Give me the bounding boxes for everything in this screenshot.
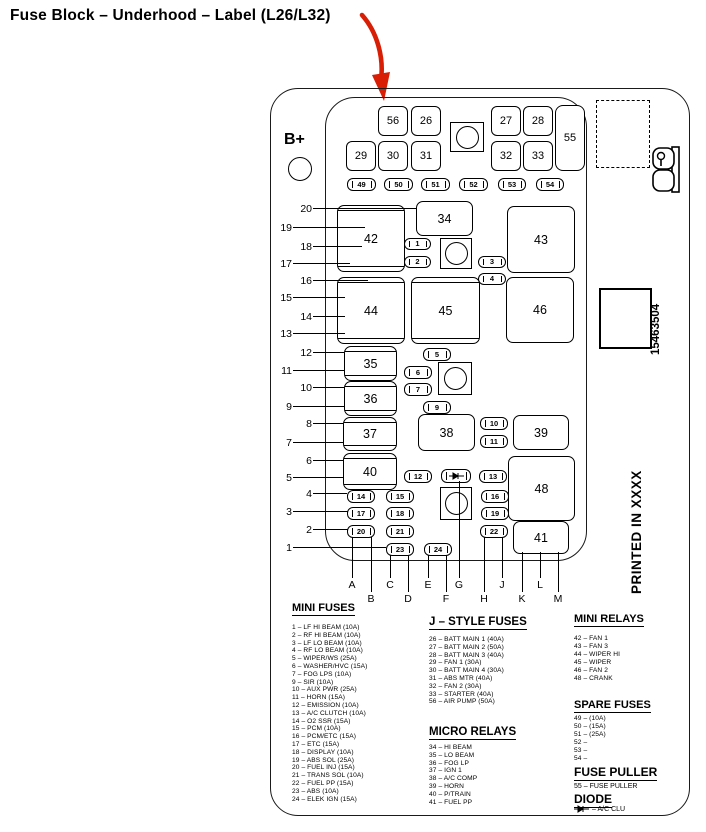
mounting-box — [599, 288, 652, 349]
leader-line — [313, 493, 347, 494]
column-line — [352, 537, 353, 578]
relay-36: 36 — [344, 381, 397, 416]
column-line — [484, 537, 485, 592]
mini-fuse-5: 5 — [423, 348, 451, 361]
diode-label: – A/C CLU — [592, 806, 625, 813]
relay-34: 34 — [416, 201, 473, 236]
pin-number: 13 — [272, 328, 292, 340]
spare-fuse-52: 52 — [459, 178, 488, 191]
legend-item: 44 – WIPER HI — [574, 651, 620, 659]
column-letter: B — [364, 593, 378, 605]
micro-relays-list: 34 – HI BEAM35 – LO BEAM36 – FOG LP37 – … — [429, 744, 477, 806]
legend-item: 51 – (25A) — [574, 731, 606, 739]
pin-number: 2 — [292, 524, 312, 536]
legend-item: 50 – (15A) — [574, 723, 606, 731]
legend-item: 9 – SIR (10A) — [292, 679, 367, 687]
legend-item: 48 – CRANK — [574, 675, 620, 683]
micro-relays-heading: MICRO RELAYS — [429, 726, 516, 740]
leader-line — [313, 208, 416, 209]
legend-item: 31 – ABS MTR (40A) — [429, 675, 504, 683]
legend-item: 52 – — [574, 739, 606, 747]
legend-item: 45 – WIPER — [574, 659, 620, 667]
pin-number: 1 — [272, 542, 292, 554]
fuse-puller-slot-55: 55 — [555, 105, 585, 171]
leader-line — [313, 387, 344, 388]
column-line — [459, 481, 460, 578]
column-letter: C — [383, 579, 397, 591]
legend-item: 19 – ABS SOL (25A) — [292, 757, 367, 765]
column-line — [428, 555, 429, 578]
diode-symbol-icon — [449, 472, 464, 480]
mini-fuse-14: 14 — [347, 490, 375, 503]
column-letter: G — [452, 579, 466, 591]
legend-item: 26 – BATT MAIN 1 (40A) — [429, 636, 504, 644]
legend-item: 30 – BATT MAIN 4 (30A) — [429, 667, 504, 675]
column-letter: F — [439, 593, 453, 605]
fuse-block-diagram: Fuse Block – Underhood – Label (L26/L32)… — [0, 0, 706, 832]
legend-item: 22 – FUEL PP (15A) — [292, 780, 367, 788]
pin-number: 16 — [292, 275, 312, 287]
bolt-circle-icon — [445, 492, 468, 515]
mini-fuse-16: 16 — [481, 490, 509, 503]
legend-item: 17 – ETC (15A) — [292, 741, 367, 749]
bolt-circle-icon — [456, 126, 479, 149]
legend-item: 13 – A/C CLUTCH (10A) — [292, 710, 367, 718]
legend-item: 11 – HORN (15A) — [292, 694, 367, 702]
leader-line — [313, 529, 348, 530]
fuse-27: 27 — [491, 106, 521, 136]
relay-37: 37 — [343, 417, 397, 451]
leader-line — [293, 333, 345, 334]
part-number: 15463504 — [650, 281, 662, 355]
diode-symbol-icon — [574, 805, 589, 813]
mini-fuse-4: 4 — [478, 273, 506, 285]
relay-41: 41 — [513, 521, 569, 554]
spare-fuse-51: 51 — [421, 178, 450, 191]
mini-relays-list: 42 – FAN 143 – FAN 344 – WIPER HI45 – WI… — [574, 635, 620, 683]
fuse-puller-icon — [646, 146, 682, 194]
column-line — [390, 555, 391, 578]
bolt-circle-icon — [444, 367, 467, 390]
pin-number: 4 — [292, 488, 312, 500]
diode-slot — [441, 469, 471, 483]
pin-number: 19 — [272, 222, 292, 234]
column-letter: H — [477, 593, 491, 605]
column-letter: D — [401, 593, 415, 605]
legend-item: 54 – — [574, 755, 606, 763]
legend-item: 28 – BATT MAIN 3 (40A) — [429, 652, 504, 660]
pin-number: 12 — [292, 347, 312, 359]
legend-item: 37 – IGN 1 — [429, 767, 477, 775]
legend-item: 16 – PCM/ETC (15A) — [292, 733, 367, 741]
column-line — [502, 537, 503, 578]
legend-item: 27 – BATT MAIN 2 (50A) — [429, 644, 504, 652]
legend-item: 39 – HORN — [429, 783, 477, 791]
legend-item: 38 – A/C COMP — [429, 775, 477, 783]
legend-item: 15 – PCM (10A) — [292, 725, 367, 733]
leader-line — [293, 406, 345, 407]
legend-item: 23 – ABS (10A) — [292, 788, 367, 796]
relay-45: 45 — [411, 277, 480, 344]
mini-fuse-19: 19 — [481, 507, 509, 520]
pin-number: 9 — [272, 401, 292, 413]
mini-fuse-1: 1 — [404, 238, 431, 250]
leader-line — [313, 280, 368, 281]
mini-fuse-13: 13 — [479, 470, 507, 483]
b-plus-stud-icon — [288, 157, 312, 181]
mini-fuse-11: 11 — [480, 435, 508, 448]
legend-item: 36 – FOG LP — [429, 760, 477, 768]
spare-fuse-53: 53 — [498, 178, 526, 191]
legend-item: 14 – O2 SSR (15A) — [292, 718, 367, 726]
spare-fuse-50: 50 — [384, 178, 413, 191]
fuse-56: 56 — [378, 106, 408, 136]
legend-item: 7 – FOG LPS (10A) — [292, 671, 367, 679]
pin-number: 15 — [272, 292, 292, 304]
column-letter: L — [533, 579, 547, 591]
fuse-33: 33 — [523, 141, 553, 171]
relay-40: 40 — [343, 453, 397, 490]
leader-line — [293, 511, 348, 512]
legend-item: 5 – WIPER/WS (25A) — [292, 655, 367, 663]
mini-fuse-3: 3 — [478, 256, 506, 268]
column-line — [558, 552, 559, 592]
pin-number: 20 — [292, 203, 312, 215]
legend-item: 20 – FUEL INJ (15A) — [292, 764, 367, 772]
legend-item: 49 – (10A) — [574, 715, 606, 723]
spare-fuses-heading: SPARE FUSES — [574, 699, 651, 713]
leader-line — [293, 442, 343, 443]
bolt-hole-icon — [440, 238, 472, 269]
legend-item: 32 – FAN 2 (30A) — [429, 683, 504, 691]
legend-item: 46 – FAN 2 — [574, 667, 620, 675]
leader-line — [293, 227, 365, 228]
legend-item: 56 – AIR PUMP (50A) — [429, 698, 504, 706]
legend-item: 3 – LF LO BEAM (10A) — [292, 640, 367, 648]
column-letter: E — [421, 579, 435, 591]
fuse-32: 32 — [491, 141, 521, 171]
legend-item: 1 – LF HI BEAM (10A) — [292, 624, 367, 632]
pin-number: 8 — [292, 418, 312, 430]
spare-fuse-49: 49 — [347, 178, 376, 191]
column-line — [408, 555, 409, 592]
legend-item: 33 – STARTER (40A) — [429, 691, 504, 699]
b-plus-label: B+ — [284, 131, 305, 149]
legend-item: 21 – TRANS SOL (10A) — [292, 772, 367, 780]
fuse-29: 29 — [346, 141, 376, 171]
pin-number: 5 — [272, 472, 292, 484]
leader-line — [313, 423, 343, 424]
mini-fuses-list: 1 – LF HI BEAM (10A)2 – RF HI BEAM (10A)… — [292, 624, 367, 803]
fuse-puller-heading: FUSE PULLER — [574, 765, 657, 781]
mini-fuse-10: 10 — [480, 417, 508, 430]
relay-43: 43 — [507, 206, 575, 273]
column-letter: K — [515, 593, 529, 605]
legend-item: 24 – ELEK IGN (15A) — [292, 796, 367, 804]
mini-fuse-2: 2 — [404, 256, 431, 268]
column-line — [446, 555, 447, 592]
j-style-fuses-list: 26 – BATT MAIN 1 (40A)27 – BATT MAIN 2 (… — [429, 636, 504, 706]
fuse-31: 31 — [411, 141, 441, 171]
leader-line — [313, 460, 343, 461]
leader-line — [293, 263, 350, 264]
legend-item: 18 – DISPLAY (10A) — [292, 749, 367, 757]
pin-number: 6 — [292, 455, 312, 467]
column-letter: J — [495, 579, 509, 591]
legend-item: 2 – RF HI BEAM (10A) — [292, 632, 367, 640]
mini-fuse-21: 21 — [386, 525, 414, 538]
fuse-26: 26 — [411, 106, 441, 136]
legend-item: 53 – — [574, 747, 606, 755]
diode-legend-row: – A/C CLU — [574, 805, 625, 813]
dashed-placeholder-box — [596, 100, 650, 168]
fuse-puller-item: 55 – FUSE PULLER — [574, 783, 637, 790]
mini-relays-heading: MINI RELAYS — [574, 613, 644, 627]
fuse-28: 28 — [523, 106, 553, 136]
relay-35: 35 — [344, 346, 397, 381]
legend-item: 34 – HI BEAM — [429, 744, 477, 752]
mini-fuse-6: 6 — [404, 366, 432, 379]
pin-number: 3 — [272, 506, 292, 518]
relay-48: 48 — [508, 456, 575, 521]
legend-item: 43 – FAN 3 — [574, 643, 620, 651]
pin-number: 14 — [292, 311, 312, 323]
relay-44: 44 — [337, 277, 405, 344]
legend-item: 40 – P/TRAIN — [429, 791, 477, 799]
legend-item: 12 – EMISSION (10A) — [292, 702, 367, 710]
pin-number: 18 — [292, 241, 312, 253]
spare-fuse-54: 54 — [536, 178, 564, 191]
pin-number: 10 — [292, 382, 312, 394]
legend-item: 35 – LO BEAM — [429, 752, 477, 760]
j-style-fuses-heading: J – STYLE FUSES — [429, 616, 527, 630]
relay-38: 38 — [418, 414, 475, 451]
printed-in-label: PRINTED IN XXXX — [629, 412, 644, 594]
mini-fuses-heading: MINI FUSES — [292, 602, 355, 616]
spare-fuses-list: 49 – (10A)50 – (15A)51 – (25A)52 –53 –54… — [574, 715, 606, 763]
mini-fuse-15: 15 — [386, 490, 414, 503]
pin-number: 17 — [272, 258, 292, 270]
bolt-hole-icon — [440, 487, 472, 520]
bolt-hole-icon — [438, 362, 472, 395]
bolt-hole-icon — [450, 122, 484, 152]
leader-line — [293, 297, 345, 298]
leader-line — [313, 316, 345, 317]
legend-item: 42 – FAN 1 — [574, 635, 620, 643]
relay-42: 42 — [337, 205, 405, 272]
relay-46: 46 — [506, 277, 574, 343]
mini-fuse-7: 7 — [404, 383, 432, 396]
leader-line — [313, 246, 362, 247]
pin-number: 11 — [272, 365, 292, 377]
bolt-circle-icon — [445, 242, 468, 265]
relay-39: 39 — [513, 415, 569, 450]
leader-line — [313, 352, 344, 353]
leader-line — [293, 370, 345, 371]
pin-number: 7 — [272, 437, 292, 449]
column-line — [522, 552, 523, 592]
column-line — [540, 552, 541, 578]
legend-item: 6 – WASHER/HVC (15A) — [292, 663, 367, 671]
mini-fuse-18: 18 — [386, 507, 414, 520]
legend-item: 29 – FAN 1 (30A) — [429, 659, 504, 667]
mini-fuse-12: 12 — [404, 470, 432, 483]
mini-fuse-9: 9 — [423, 401, 451, 414]
column-letter: M — [551, 593, 565, 605]
column-letter: A — [345, 579, 359, 591]
mini-fuse-17: 17 — [347, 507, 375, 520]
page-title: Fuse Block – Underhood – Label (L26/L32) — [10, 7, 331, 25]
leader-line — [293, 477, 343, 478]
legend-item: 41 – FUEL PP — [429, 799, 477, 807]
fuse-30: 30 — [378, 141, 408, 171]
legend-item: 10 – AUX PWR (25A) — [292, 686, 367, 694]
legend-item: 4 – RF LO BEAM (10A) — [292, 647, 367, 655]
column-line — [371, 537, 372, 592]
